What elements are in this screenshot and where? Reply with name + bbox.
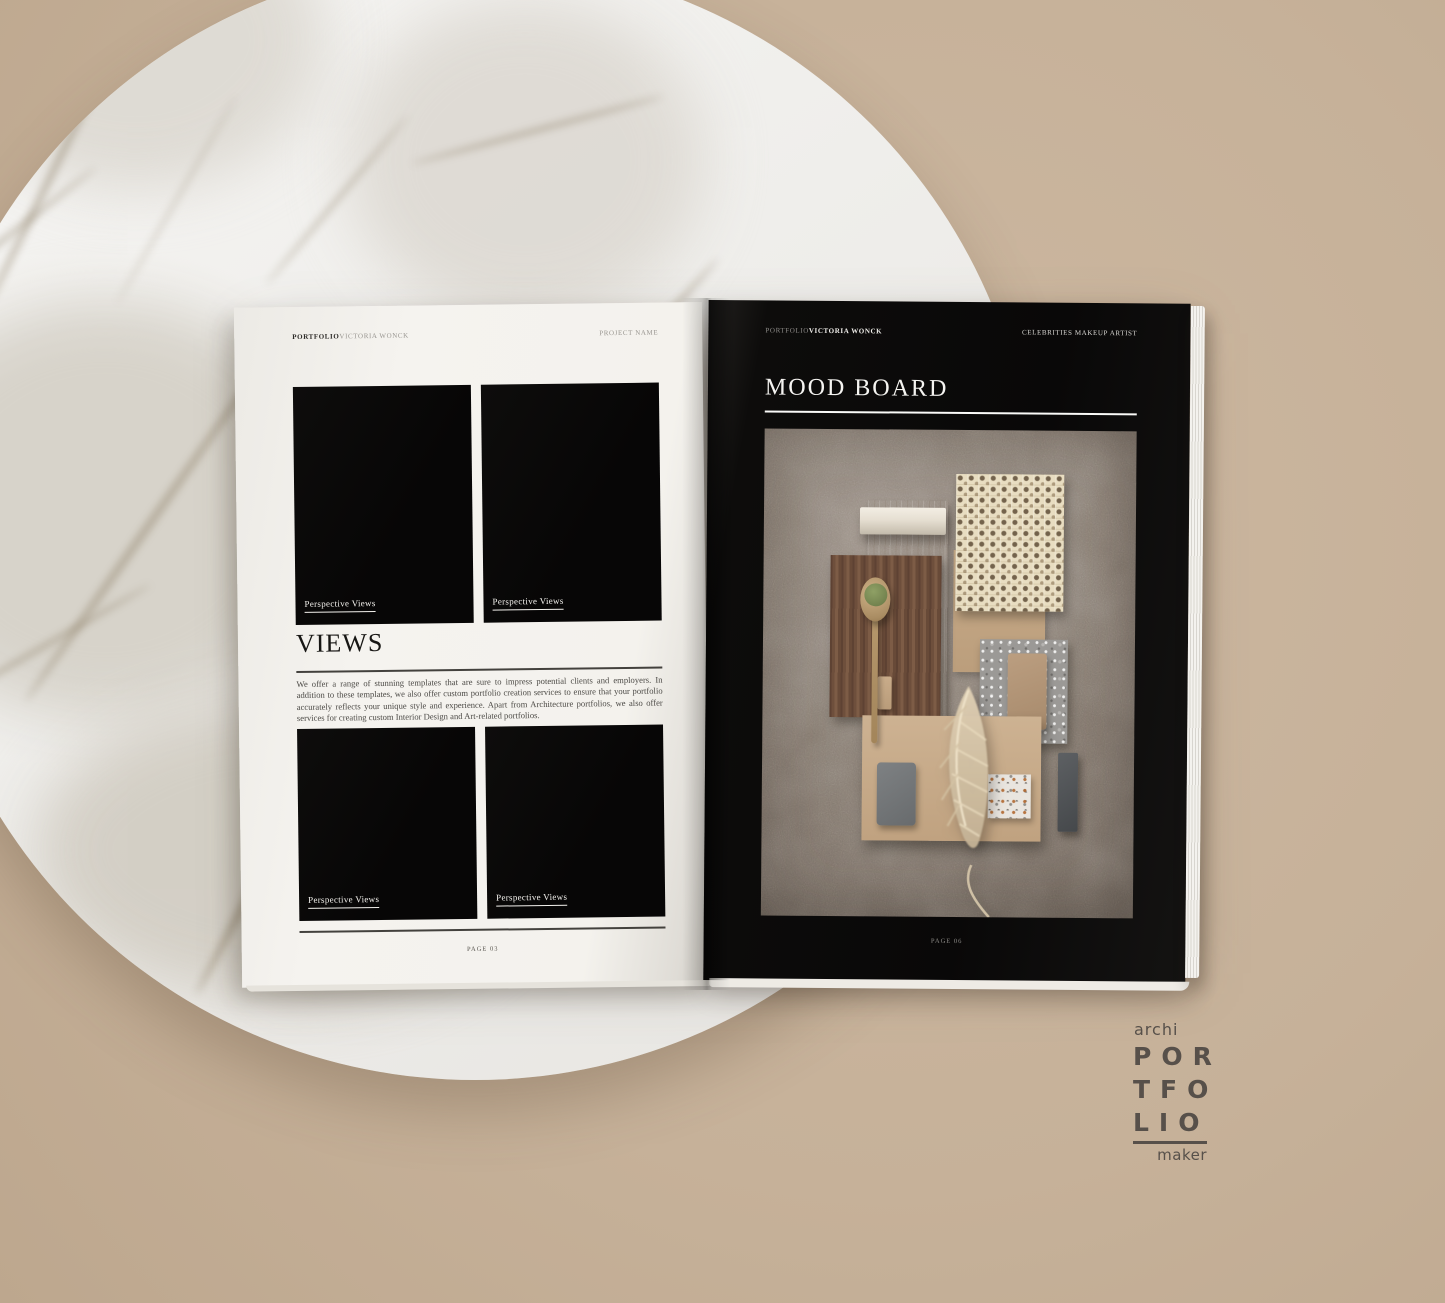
rattan-webbing-sample [955, 474, 1064, 612]
figure-placeholder: Perspective Views [293, 385, 474, 625]
body-paragraph: We offer a range of stunning templates t… [296, 675, 663, 725]
figure-row-bottom: Perspective Views Perspective Views [297, 725, 665, 921]
right-page: PORTFOLIOVICTORIA WONCK CELEBRITIES MAKE… [703, 300, 1190, 984]
brand-bold-text: PORTFOLIO [292, 332, 339, 341]
brand-bold-text: VICTORIA WONCK [809, 327, 882, 336]
brand-light-text: PORTFOLIO [765, 326, 809, 334]
brand-logo-top: archi [1134, 1020, 1207, 1039]
page-number: PAGE 06 [761, 936, 1133, 946]
left-page-header: PORTFOLIOVICTORIA WONCK PROJECT NAME [292, 329, 658, 341]
section-title: VIEWS [296, 628, 384, 659]
matcha-powder [864, 583, 887, 606]
figure-row-top: Perspective Views Perspective Views [293, 383, 662, 625]
project-name-label: PROJECT NAME [599, 329, 658, 338]
figure-placeholder: Perspective Views [297, 727, 477, 921]
brand-logo-line: POR [1133, 1041, 1207, 1072]
figure-caption: Perspective Views [304, 598, 375, 613]
divider-rule [765, 410, 1137, 415]
marble-gray-patch [345, 0, 705, 320]
figure-caption: Perspective Views [496, 892, 567, 907]
marble-gray-patch [0, 0, 325, 190]
figure-caption: Perspective Views [492, 596, 563, 611]
brand-logo-line: TFO [1133, 1074, 1207, 1105]
left-page: PORTFOLIOVICTORIA WONCK PROJECT NAME Per… [234, 302, 710, 988]
scene-mockup: PORTFOLIOVICTORIA WONCK PROJECT NAME Per… [0, 0, 1445, 1303]
section-title: MOOD BOARD [765, 374, 949, 402]
right-page-header: PORTFOLIOVICTORIA WONCK CELEBRITIES MAKE… [765, 326, 1137, 337]
brand-logo-line: LIO [1133, 1107, 1207, 1138]
left-header-brand: PORTFOLIOVICTORIA WONCK [292, 332, 409, 341]
beige-strip-swatch [877, 676, 891, 709]
divider-rule [300, 927, 666, 933]
figure-caption: Perspective Views [308, 894, 379, 909]
charcoal-bar-sample [1058, 753, 1079, 832]
wooden-spoon-handle [871, 617, 878, 743]
brand-logo: archi POR TFO LIO maker [1133, 1020, 1207, 1164]
moodboard-photo [761, 428, 1137, 918]
portfolio-magazine-spread: PORTFOLIOVICTORIA WONCK PROJECT NAME Per… [238, 298, 1202, 990]
project-name-label: CELEBRITIES MAKEUP ARTIST [1022, 328, 1137, 337]
figure-placeholder: Perspective Views [485, 725, 665, 919]
brand-logo-rule [1133, 1141, 1207, 1144]
marble-trim-sample [860, 507, 946, 535]
brand-logo-bottom: maker [1133, 1146, 1207, 1164]
figure-placeholder: Perspective Views [481, 383, 662, 623]
page-number: PAGE 03 [300, 944, 666, 955]
divider-rule [296, 667, 662, 673]
brand-light-text: VICTORIA WONCK [339, 332, 408, 341]
right-header-brand: PORTFOLIOVICTORIA WONCK [765, 326, 882, 335]
pampas-feather [909, 682, 1029, 918]
